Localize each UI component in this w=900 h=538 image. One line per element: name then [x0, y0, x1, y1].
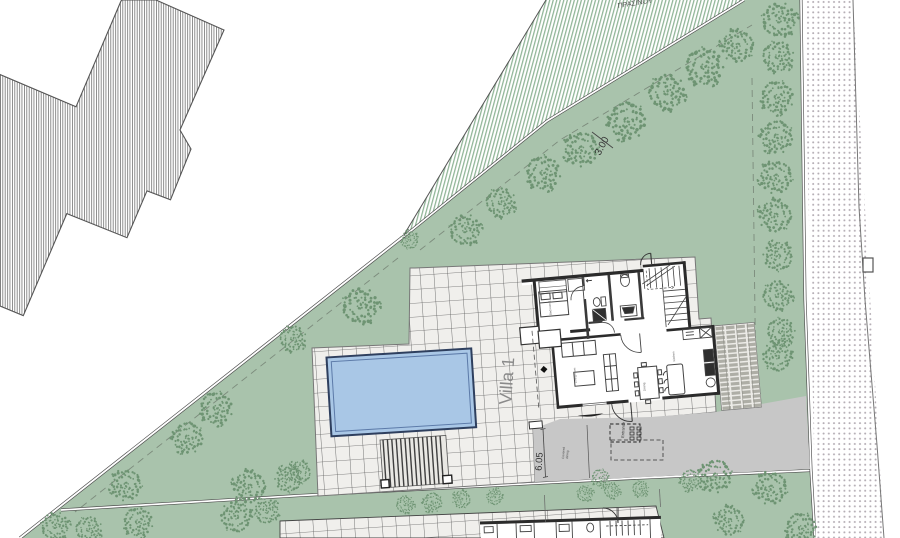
svg-text:6.05: 6.05 [534, 452, 546, 471]
svg-text:Entrance: Entrance [620, 421, 626, 438]
svg-text:Dining: Dining [642, 382, 647, 391]
svg-text:dining: dining [565, 450, 570, 459]
svg-text:Villa 1: Villa 1 [495, 357, 518, 406]
